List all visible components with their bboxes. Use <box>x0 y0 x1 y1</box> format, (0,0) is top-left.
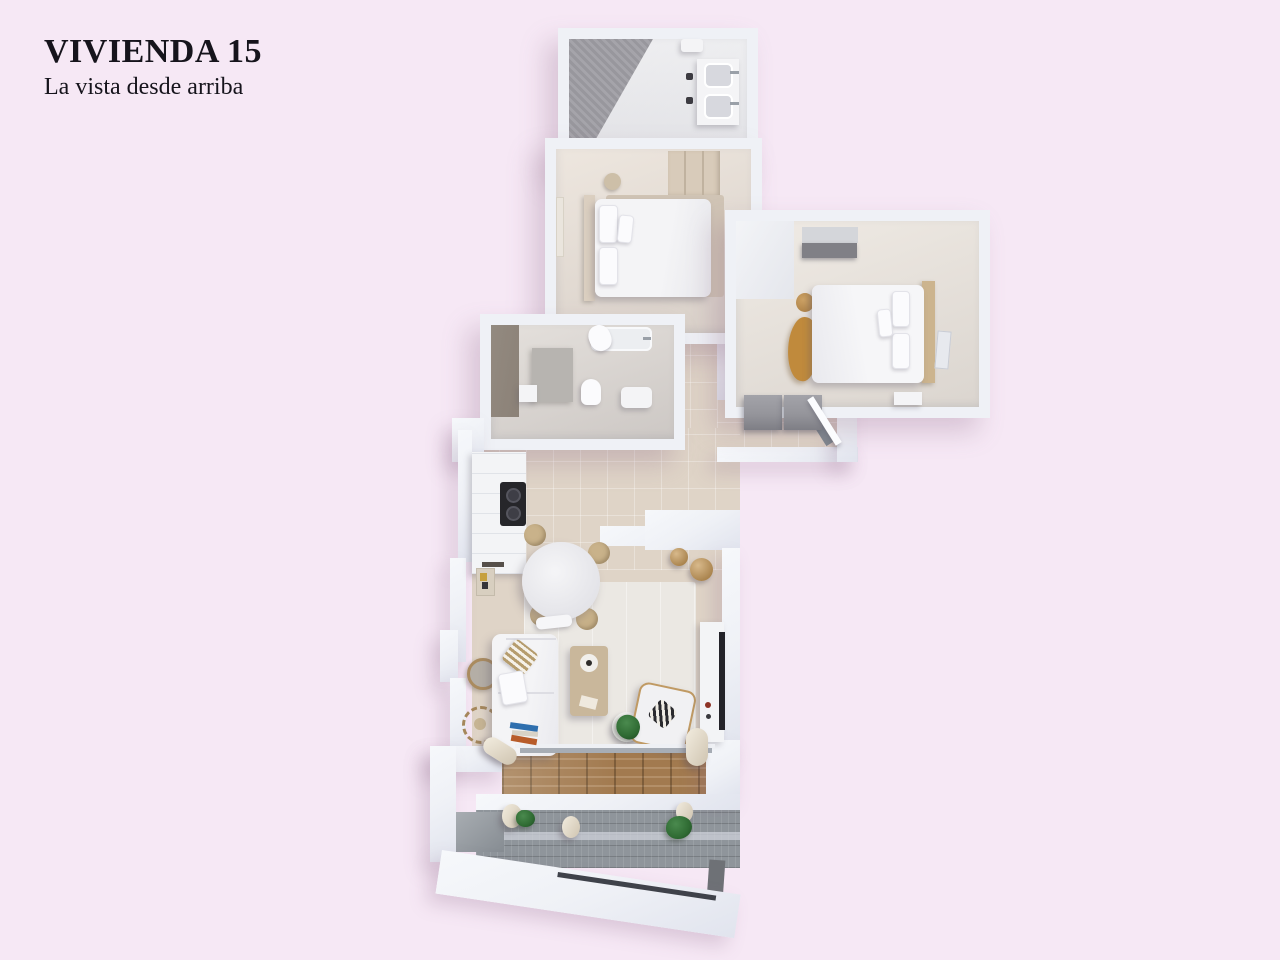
toiletry-1 <box>686 73 693 80</box>
bed2-pillow-1 <box>892 291 910 327</box>
art-blob-gold <box>480 573 487 581</box>
washbasin <box>621 387 652 408</box>
terrace-recess <box>456 812 504 852</box>
wardrobe <box>668 151 720 198</box>
sofa-seam-1 <box>506 638 556 640</box>
entry-closet-block <box>645 510 740 550</box>
bathroom2-taupe-wall <box>491 325 519 417</box>
room-bathroom-2 <box>480 314 685 450</box>
kitchen-plinth-dark <box>482 562 504 567</box>
wardrobe-divider-2 <box>702 151 704 198</box>
planter-pot-2 <box>562 816 580 838</box>
console-decor-red <box>705 702 711 708</box>
tv-screen <box>719 632 725 730</box>
toilet-top <box>681 39 703 52</box>
shower-partition <box>532 348 573 402</box>
bw-striped-pillow <box>647 698 678 729</box>
sunburst-center <box>474 718 486 730</box>
sink-2 <box>704 94 733 119</box>
header: VIVIENDA 15 La vista desde arriba <box>44 34 262 101</box>
bed1-pillow-1 <box>599 205 618 243</box>
bolster-right <box>686 728 708 766</box>
entry-cabinet-1 <box>744 395 782 430</box>
tub-faucet-icon <box>643 337 651 340</box>
pouf-1 <box>670 548 688 566</box>
tv-console <box>700 622 724 742</box>
bedroom2-closet-dark <box>802 243 857 258</box>
art-blob-dark <box>482 582 488 589</box>
bed1-cushion <box>617 214 635 243</box>
bedroom1-decor-hat <box>604 173 621 190</box>
bedroom1-wall-art <box>556 197 564 257</box>
faucet-1-icon <box>730 71 739 74</box>
lower-balcony-band <box>476 832 740 840</box>
coffee-cup <box>586 660 592 666</box>
floorplan <box>420 26 1000 936</box>
sofa-white-pillow <box>497 670 528 706</box>
page-title: VIVIENDA 15 <box>44 34 262 70</box>
living-wall-art <box>476 568 495 596</box>
bed1-headboard <box>584 195 595 301</box>
bedroom2-closet-white <box>736 221 794 299</box>
console-decor-dark <box>706 714 711 719</box>
toiletry-2 <box>686 97 693 104</box>
burner-1-icon <box>506 488 521 503</box>
round-dining-table <box>522 542 600 620</box>
terrace-plant-1 <box>516 810 535 827</box>
bathroom2-low-cabinet <box>519 385 537 402</box>
bed2-cushion <box>877 308 894 337</box>
terrace-wall-left <box>430 746 456 862</box>
left-wall-notch <box>440 630 458 682</box>
page: { "page": { "background": "#f6e8f5", "wi… <box>0 0 1280 960</box>
magazine <box>579 695 598 710</box>
burner-2-icon <box>506 506 521 521</box>
sink-1 <box>704 63 733 88</box>
wood-deck <box>502 752 708 796</box>
room-bedroom-2 <box>725 210 990 418</box>
coffee-table <box>570 646 608 716</box>
terrace-door-glass <box>520 748 712 753</box>
toilet <box>581 379 601 405</box>
bedroom2-closet-panel <box>802 227 858 243</box>
pouf-2 <box>690 558 713 581</box>
bed1-pillow-2 <box>599 247 618 285</box>
walk-in-shower <box>569 39 653 139</box>
page-subtitle: La vista desde arriba <box>44 74 262 101</box>
faucet-2-icon <box>730 102 739 105</box>
dining-chair-1 <box>524 524 546 546</box>
left-wall-a <box>458 430 472 562</box>
wardrobe-divider-1 <box>684 151 686 198</box>
leaning-mirror <box>934 330 951 369</box>
bed2-pillow-2 <box>892 333 910 369</box>
bedroom2-nightstand <box>894 392 922 405</box>
